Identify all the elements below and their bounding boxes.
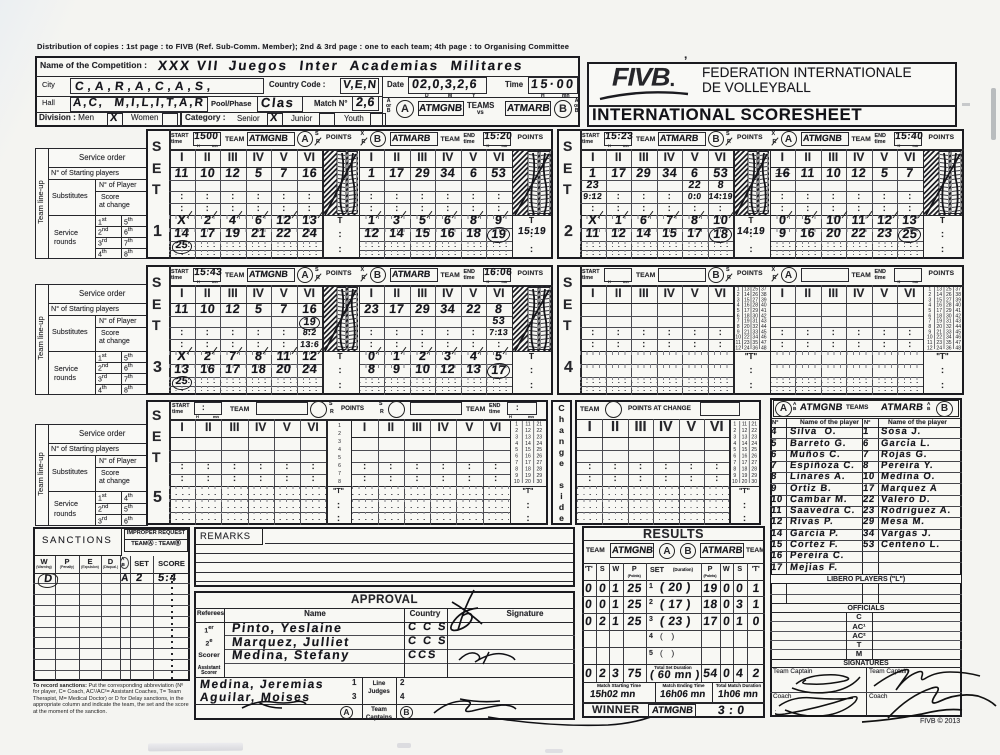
svg-text:29: 29 bbox=[536, 473, 542, 479]
svg-text:17: 17 bbox=[525, 460, 531, 466]
svg-text:10: 10 bbox=[732, 479, 738, 484]
svg-text:20: 20 bbox=[525, 479, 531, 484]
svg-text:24: 24 bbox=[751, 441, 757, 447]
svg-text:28: 28 bbox=[751, 466, 757, 472]
svg-text:25: 25 bbox=[751, 447, 757, 453]
svg-text:1: 1 bbox=[515, 422, 518, 428]
svg-text:3: 3 bbox=[515, 434, 518, 440]
svg-text:30: 30 bbox=[751, 479, 757, 484]
svg-text:8: 8 bbox=[515, 466, 518, 472]
svg-text:7: 7 bbox=[515, 460, 518, 466]
svg-text:8: 8 bbox=[733, 466, 736, 472]
svg-text:23: 23 bbox=[536, 434, 542, 440]
svg-text:24: 24 bbox=[536, 441, 542, 447]
svg-text:6: 6 bbox=[515, 454, 518, 460]
svg-text:4: 4 bbox=[733, 441, 736, 447]
svg-text:21: 21 bbox=[536, 422, 542, 428]
svg-text:14: 14 bbox=[742, 441, 748, 447]
svg-text:26: 26 bbox=[751, 454, 757, 460]
svg-text:11: 11 bbox=[742, 422, 747, 428]
svg-text:22: 22 bbox=[751, 428, 757, 434]
svg-text:48: 48 bbox=[955, 345, 961, 350]
svg-text:28: 28 bbox=[536, 466, 542, 472]
svg-text:9: 9 bbox=[733, 473, 736, 479]
svg-text:1: 1 bbox=[733, 422, 736, 428]
svg-text:36: 36 bbox=[752, 345, 758, 350]
svg-text:16: 16 bbox=[525, 454, 531, 460]
svg-text:18: 18 bbox=[742, 466, 748, 472]
svg-text:6: 6 bbox=[338, 463, 341, 469]
svg-text:2: 2 bbox=[733, 428, 736, 434]
svg-text:4: 4 bbox=[338, 447, 341, 453]
svg-text:2: 2 bbox=[515, 428, 518, 434]
svg-text:9: 9 bbox=[515, 473, 518, 479]
svg-text:20: 20 bbox=[742, 479, 748, 484]
svg-text:8: 8 bbox=[338, 479, 341, 484]
svg-text:25: 25 bbox=[536, 447, 542, 453]
svg-text:1: 1 bbox=[338, 423, 341, 429]
svg-text:7: 7 bbox=[338, 471, 341, 477]
svg-text:27: 27 bbox=[536, 460, 542, 466]
svg-text:3: 3 bbox=[733, 434, 736, 440]
svg-text:5: 5 bbox=[515, 447, 518, 453]
svg-text:12: 12 bbox=[735, 345, 741, 350]
svg-text:14: 14 bbox=[525, 441, 531, 447]
svg-text:48: 48 bbox=[761, 345, 767, 350]
svg-text:22: 22 bbox=[536, 428, 542, 434]
svg-text:27: 27 bbox=[751, 460, 757, 466]
svg-text:15: 15 bbox=[742, 447, 748, 453]
svg-text:2: 2 bbox=[338, 431, 341, 437]
svg-text:24: 24 bbox=[936, 345, 942, 350]
svg-text:15: 15 bbox=[525, 447, 531, 453]
svg-text:24: 24 bbox=[744, 345, 750, 350]
svg-text:26: 26 bbox=[536, 454, 542, 460]
svg-text:5: 5 bbox=[338, 455, 341, 461]
svg-text:10: 10 bbox=[514, 479, 520, 484]
svg-text:19: 19 bbox=[525, 473, 531, 479]
svg-text:36: 36 bbox=[945, 345, 951, 350]
svg-text:23: 23 bbox=[751, 434, 757, 440]
svg-text:17: 17 bbox=[742, 460, 748, 466]
svg-text:30: 30 bbox=[536, 479, 542, 484]
svg-text:29: 29 bbox=[751, 473, 757, 479]
svg-text:11: 11 bbox=[525, 422, 530, 428]
svg-text:6: 6 bbox=[733, 454, 736, 460]
svg-text:13: 13 bbox=[742, 434, 748, 440]
svg-text:12: 12 bbox=[926, 345, 932, 350]
svg-text:16: 16 bbox=[742, 454, 748, 460]
svg-text:3: 3 bbox=[338, 439, 341, 445]
svg-text:12: 12 bbox=[525, 428, 531, 434]
svg-text:4: 4 bbox=[515, 441, 518, 447]
svg-text:5: 5 bbox=[733, 447, 736, 453]
svg-text:18: 18 bbox=[525, 466, 531, 472]
svg-text:21: 21 bbox=[751, 422, 757, 428]
svg-text:19: 19 bbox=[742, 473, 748, 479]
svg-text:7: 7 bbox=[733, 460, 736, 466]
svg-text:13: 13 bbox=[525, 434, 531, 440]
svg-text:12: 12 bbox=[742, 428, 748, 434]
